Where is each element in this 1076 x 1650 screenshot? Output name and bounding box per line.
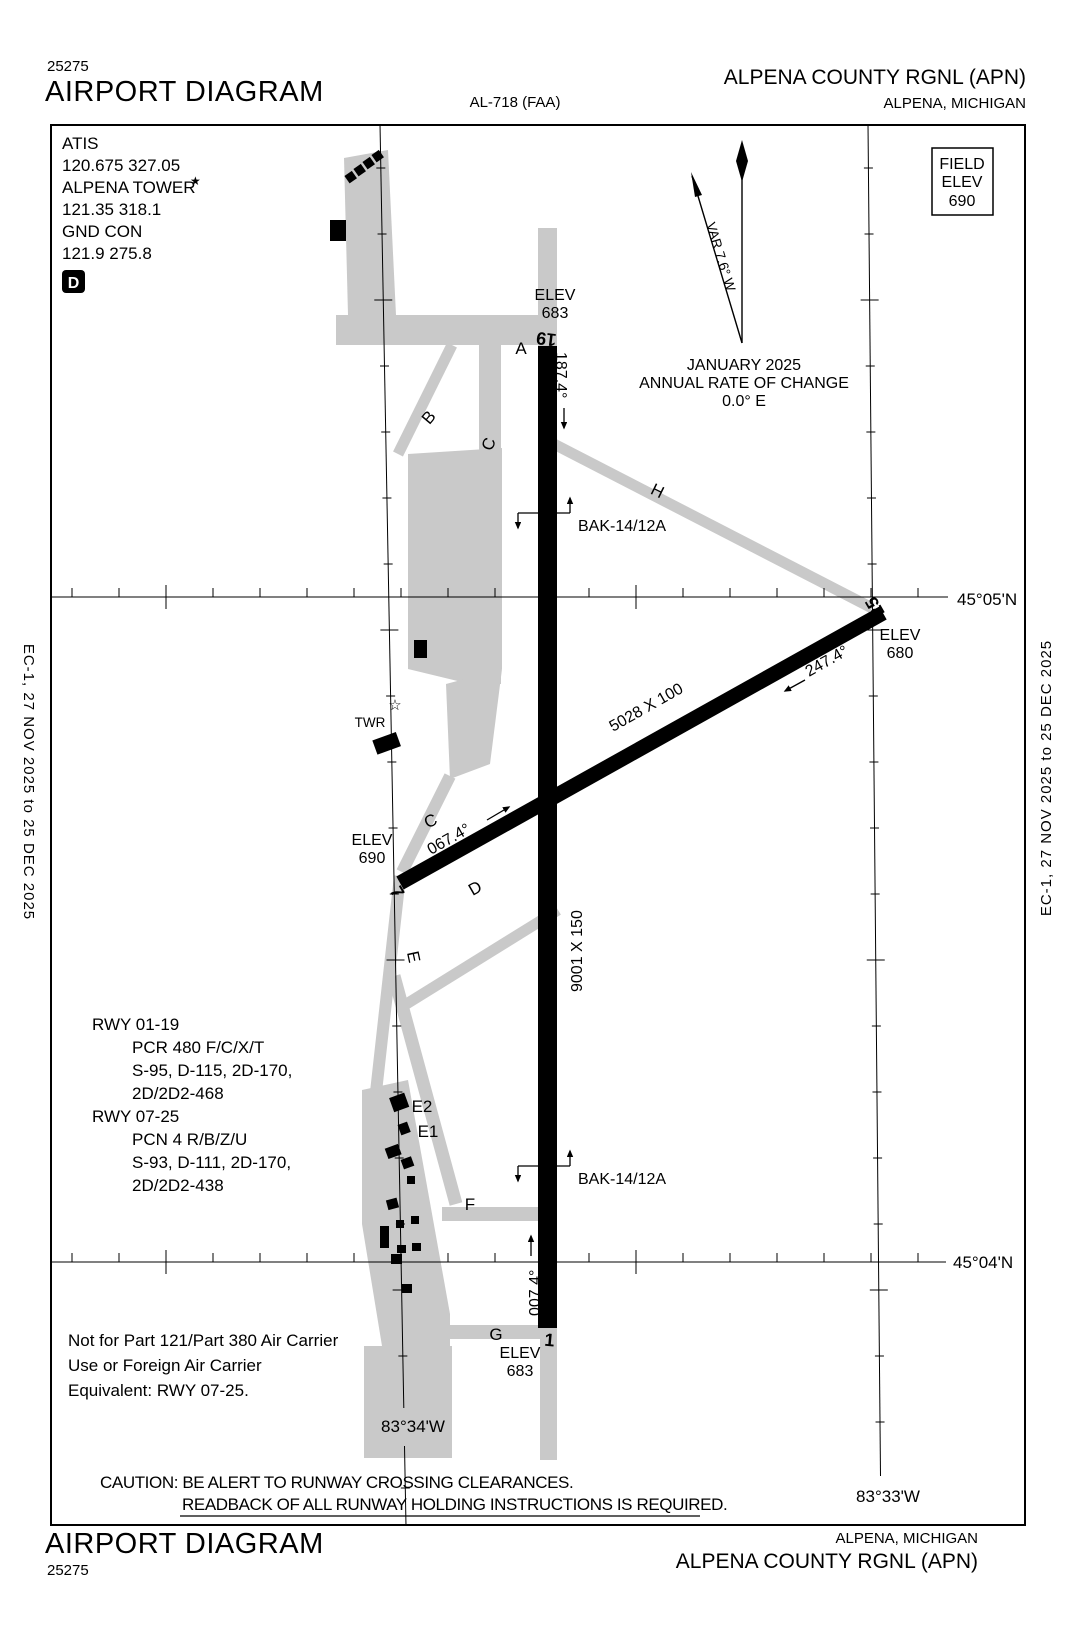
taxiway-f-label: F xyxy=(465,1195,475,1214)
annual-rate-label: ANNUAL RATE OF CHANGE xyxy=(639,375,849,392)
tower-building xyxy=(372,732,401,755)
rwy0119-pcr: PCR 480 F/C/X/T xyxy=(132,1038,264,1057)
magnetic-north-barb-icon xyxy=(691,172,702,197)
t-hangar-apron xyxy=(364,1346,452,1458)
gnd-con-label: GND CON xyxy=(62,222,142,241)
rwy0119-strength2: 2D/2D2-468 xyxy=(132,1084,224,1103)
elev-01-value: 683 xyxy=(507,1363,534,1380)
heading-247-arrow-icon xyxy=(785,680,805,691)
elev-07-value: 690 xyxy=(359,850,386,867)
airport-diagram-chart: 45°05'N 45°04'N 83°34'W 83°33'W xyxy=(50,124,1026,1526)
elev-01-label: ELEV xyxy=(500,1345,541,1362)
airport-name-top: ALPENA COUNTY RGNL (APN) xyxy=(526,66,1026,90)
elev-19-label: ELEV xyxy=(535,287,576,304)
runway-19-number: 19 xyxy=(535,328,557,350)
restriction-note-l1: Not for Part 121/Part 380 Air Carrier xyxy=(68,1331,339,1350)
restriction-note-l3: Equivalent: RWY 07-25. xyxy=(68,1381,249,1400)
elev-07-label: ELEV xyxy=(352,832,393,849)
building xyxy=(391,1254,402,1264)
airport-diagram-page: 25275 AIRPORT DIAGRAM AL-718 (FAA) ALPEN… xyxy=(0,0,1076,1650)
taxiway-e2-label: E2 xyxy=(412,1097,433,1116)
runway-19-heading: 187.4° xyxy=(552,352,569,398)
page-title-bottom: AIRPORT DIAGRAM xyxy=(45,1528,324,1561)
chart-code-bottom: 25275 xyxy=(47,1562,89,1579)
rwy0119-strength1: S-95, D-115, 2D-170, xyxy=(132,1061,292,1080)
chart-labels: ELEV 683 19 1 7 25 187.4° 007.4° 067.4° … xyxy=(352,287,921,1380)
runway-01-heading: 007.4° xyxy=(527,1270,544,1316)
page-title: AIRPORT DIAGRAM xyxy=(45,76,324,109)
caution-note-l1: CAUTION: BE ALERT TO RUNWAY CROSSING CLE… xyxy=(100,1473,573,1492)
arresting-gear-south-label: BAK-14/12A xyxy=(578,1171,666,1188)
airport-location-bottom: ALPENA, MICHIGAN xyxy=(578,1530,978,1547)
taxiway-d-label: D xyxy=(465,877,485,900)
runway-0119-dimensions: 9001 X 150 xyxy=(569,910,586,992)
annual-rate-value: 0.0° E xyxy=(722,393,766,410)
atis-freqs: 120.675 327.05 xyxy=(62,156,180,175)
rwy0725-strength2: 2D/2D2-438 xyxy=(132,1176,224,1195)
compass-date: JANUARY 2025 xyxy=(687,357,801,374)
rwy0725-strength1: S-93, D-111, 2D-170, xyxy=(132,1153,291,1172)
caution-note-l2: READBACK OF ALL RUNWAY HOLDING INSTRUCTI… xyxy=(182,1495,727,1514)
building xyxy=(330,220,346,241)
elev-19-value: 683 xyxy=(542,305,569,322)
field-elev-box: FIELD ELEV 690 xyxy=(932,148,993,215)
gnd-con-freqs: 121.9 275.8 xyxy=(62,244,152,263)
magnetic-variation-label: VAR 7.6° W xyxy=(703,220,738,293)
tower-star-symbol-icon: ☆ xyxy=(388,697,401,714)
building xyxy=(412,1243,421,1251)
longitude-label-east: 83°33'W xyxy=(856,1487,920,1506)
atis-label: ATIS xyxy=(62,134,99,153)
rwy0725-pcn: PCN 4 R/B/Z/U xyxy=(132,1130,247,1149)
building xyxy=(396,1220,404,1228)
hotspot-d-letter: D xyxy=(68,275,80,292)
taxiway-a-label: A xyxy=(515,339,527,358)
taxiway-e1-label: E1 xyxy=(418,1122,439,1141)
effective-dates-left: EC-1, 27 NOV 2025 to 25 DEC 2025 xyxy=(17,612,37,952)
runway-1-number: 1 xyxy=(544,1330,556,1351)
al-reference: AL-718 (FAA) xyxy=(440,94,590,111)
building xyxy=(402,1284,412,1293)
apron-south-taper xyxy=(446,669,502,779)
building xyxy=(411,1216,419,1224)
rwy0725-title: RWY 07-25 xyxy=(92,1107,179,1126)
effective-dates-right: EC-1, 27 NOV 2025 to 25 DEC 2025 xyxy=(1038,608,1058,948)
tower-freqs: 121.35 318.1 xyxy=(62,200,161,219)
building xyxy=(397,1245,406,1253)
field-elev-l1: FIELD xyxy=(939,156,984,173)
building xyxy=(414,640,427,658)
latitude-label-north: 45°05'N xyxy=(957,590,1017,609)
tower-label: ALPENA TOWER xyxy=(62,178,196,197)
arresting-gear-north-label: BAK-14/12A xyxy=(578,518,666,535)
runway-01-19 xyxy=(538,346,557,1328)
taxiway-e-label: E xyxy=(403,949,424,964)
north-arrow: VAR 7.6° W JANUARY 2025 ANNUAL RATE OF C… xyxy=(639,140,849,410)
airport-name-bottom: ALPENA COUNTY RGNL (APN) xyxy=(478,1550,978,1574)
elev-25-value: 680 xyxy=(887,645,914,662)
building xyxy=(380,1226,389,1248)
comms-block: ATIS 120.675 327.05 ALPENA TOWER ★ 121.3… xyxy=(62,134,201,293)
longitude-line-8333 xyxy=(868,124,881,1476)
taxiway-b xyxy=(398,345,452,454)
restriction-note-l2: Use or Foreign Air Carrier xyxy=(68,1356,262,1375)
airport-location-top: ALPENA, MICHIGAN xyxy=(626,95,1026,112)
field-elev-value: 690 xyxy=(949,193,976,210)
elev-25-label: ELEV xyxy=(880,627,921,644)
tower-star-icon: ★ xyxy=(190,174,201,188)
true-north-arrowhead-icon xyxy=(736,140,748,182)
tower-label-twr: TWR xyxy=(355,715,386,730)
latitude-label-south: 45°04'N xyxy=(953,1253,1013,1272)
longitude-label-west: 83°34'W xyxy=(381,1417,445,1436)
field-elev-l2: ELEV xyxy=(942,174,983,191)
taxiway-g-label: G xyxy=(489,1325,502,1344)
building xyxy=(407,1176,415,1184)
chart-code-top: 25275 xyxy=(47,58,89,75)
taxiway-network xyxy=(336,150,872,1460)
rwy0119-title: RWY 01-19 xyxy=(92,1015,179,1034)
